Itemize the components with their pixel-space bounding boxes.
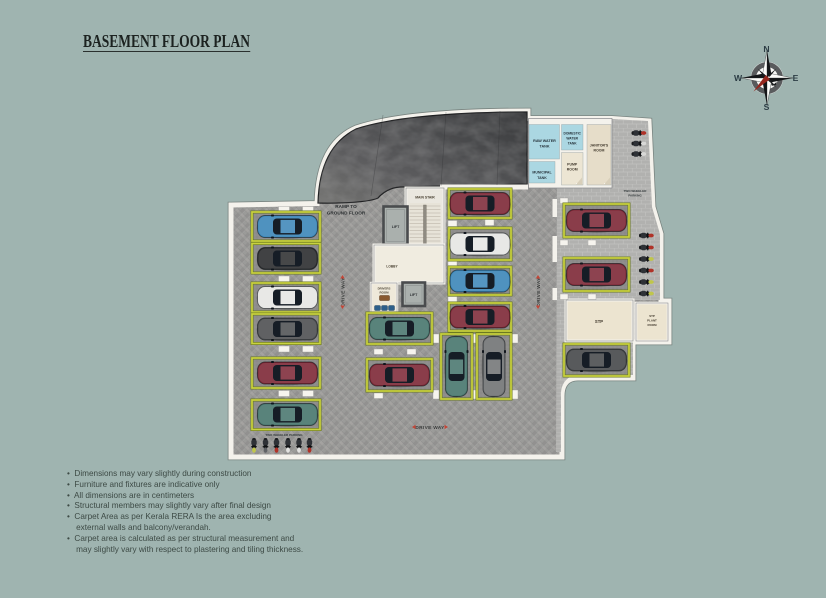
svg-text:PLANT: PLANT xyxy=(647,319,657,323)
svg-text:DOMESTIC: DOMESTIC xyxy=(563,132,581,136)
svg-text:W: W xyxy=(734,73,743,83)
svg-text:ROOM: ROOM xyxy=(380,291,390,295)
svg-text:MAIN STAIR: MAIN STAIR xyxy=(415,196,435,200)
svg-text:GROUND FLOOR: GROUND FLOOR xyxy=(327,211,366,216)
svg-text:RAMP TO: RAMP TO xyxy=(335,204,357,209)
svg-text:TANK: TANK xyxy=(537,176,547,180)
svg-text:LOBBY: LOBBY xyxy=(386,265,398,269)
svg-text:STP: STP xyxy=(595,319,603,324)
svg-text:TANK: TANK xyxy=(540,145,550,149)
svg-text:STP: STP xyxy=(649,314,655,318)
svg-text:PARKING: PARKING xyxy=(628,194,642,198)
svg-text:ROOM: ROOM xyxy=(594,149,605,153)
svg-text:LIFT: LIFT xyxy=(392,225,400,229)
svg-text:ROOM: ROOM xyxy=(567,168,578,172)
svg-text:E: E xyxy=(793,73,799,83)
svg-text:DRIVE WAY: DRIVE WAY xyxy=(536,277,542,307)
svg-text:MUNICIPAL: MUNICIPAL xyxy=(532,171,552,175)
svg-text:TWO WHEELER: TWO WHEELER xyxy=(624,189,648,193)
svg-text:DRIVE WAY: DRIVE WAY xyxy=(415,425,445,431)
svg-text:S: S xyxy=(764,102,770,112)
svg-text:WATER: WATER xyxy=(566,137,578,141)
svg-text:ROOM: ROOM xyxy=(648,323,658,327)
svg-text:PUMP: PUMP xyxy=(567,163,578,167)
svg-text:N: N xyxy=(763,44,769,54)
svg-text:RAW WATER: RAW WATER xyxy=(533,139,556,143)
svg-text:TWO WHEELER PARKING: TWO WHEELER PARKING xyxy=(265,433,303,437)
svg-text:DRIVE WAY: DRIVE WAY xyxy=(340,277,346,307)
svg-text:LIFT: LIFT xyxy=(410,293,418,297)
svg-text:JANITOR'S: JANITOR'S xyxy=(590,144,609,148)
svg-text:TANK: TANK xyxy=(568,142,578,146)
